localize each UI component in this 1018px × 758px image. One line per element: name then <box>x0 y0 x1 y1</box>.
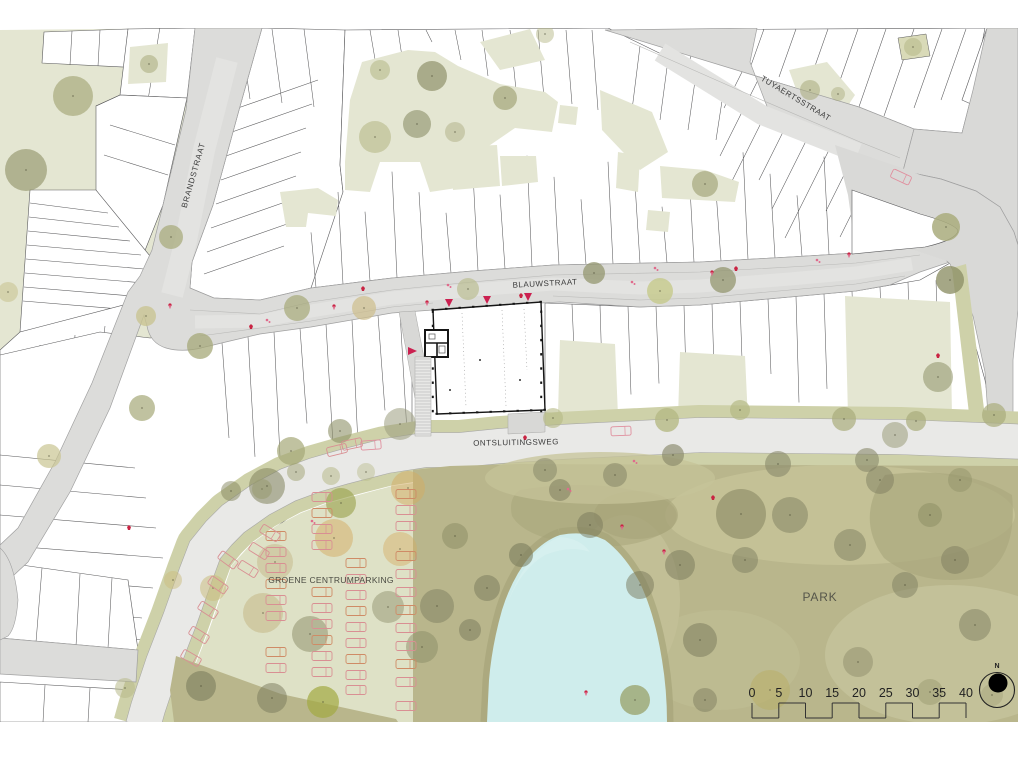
svg-text:20: 20 <box>852 686 866 700</box>
svg-text:GROENE CENTRUMPARKING: GROENE CENTRUMPARKING <box>268 575 394 585</box>
svg-text:5: 5 <box>775 686 782 700</box>
svg-text:N: N <box>994 663 999 670</box>
svg-text:35: 35 <box>932 686 946 700</box>
svg-text:25: 25 <box>879 686 893 700</box>
svg-text:0: 0 <box>749 686 756 700</box>
svg-text:10: 10 <box>799 686 813 700</box>
svg-text:PARK: PARK <box>803 590 838 604</box>
svg-text:15: 15 <box>825 686 839 700</box>
svg-text:ONTSLUITINGSWEG: ONTSLUITINGSWEG <box>473 437 559 447</box>
svg-text:40: 40 <box>959 686 973 700</box>
svg-text:30: 30 <box>906 686 920 700</box>
